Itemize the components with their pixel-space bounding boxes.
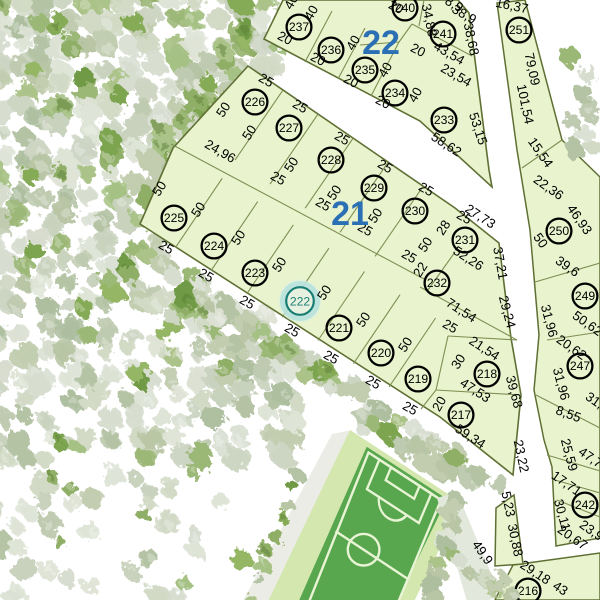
- svg-text:221: 221: [329, 321, 350, 335]
- svg-text:227: 227: [279, 121, 300, 135]
- svg-text:232: 232: [427, 276, 448, 290]
- svg-text:250: 250: [549, 224, 570, 238]
- svg-text:219: 219: [408, 372, 429, 386]
- svg-text:251: 251: [509, 23, 530, 37]
- svg-text:242: 242: [575, 498, 596, 512]
- svg-text:225: 225: [164, 211, 185, 225]
- svg-text:220: 220: [371, 346, 392, 360]
- svg-text:223: 223: [245, 266, 266, 280]
- svg-text:224: 224: [204, 239, 225, 253]
- svg-text:228: 228: [321, 153, 342, 167]
- svg-text:222: 222: [290, 294, 311, 308]
- svg-text:230: 230: [405, 204, 426, 218]
- svg-text:229: 229: [364, 181, 385, 195]
- svg-text:218: 218: [477, 367, 498, 381]
- svg-text:21: 21: [331, 195, 369, 233]
- svg-text:216: 216: [518, 584, 539, 598]
- svg-text:22: 22: [362, 24, 400, 62]
- svg-text:249: 249: [575, 289, 596, 303]
- svg-text:233: 233: [434, 113, 455, 127]
- svg-text:226: 226: [245, 95, 266, 109]
